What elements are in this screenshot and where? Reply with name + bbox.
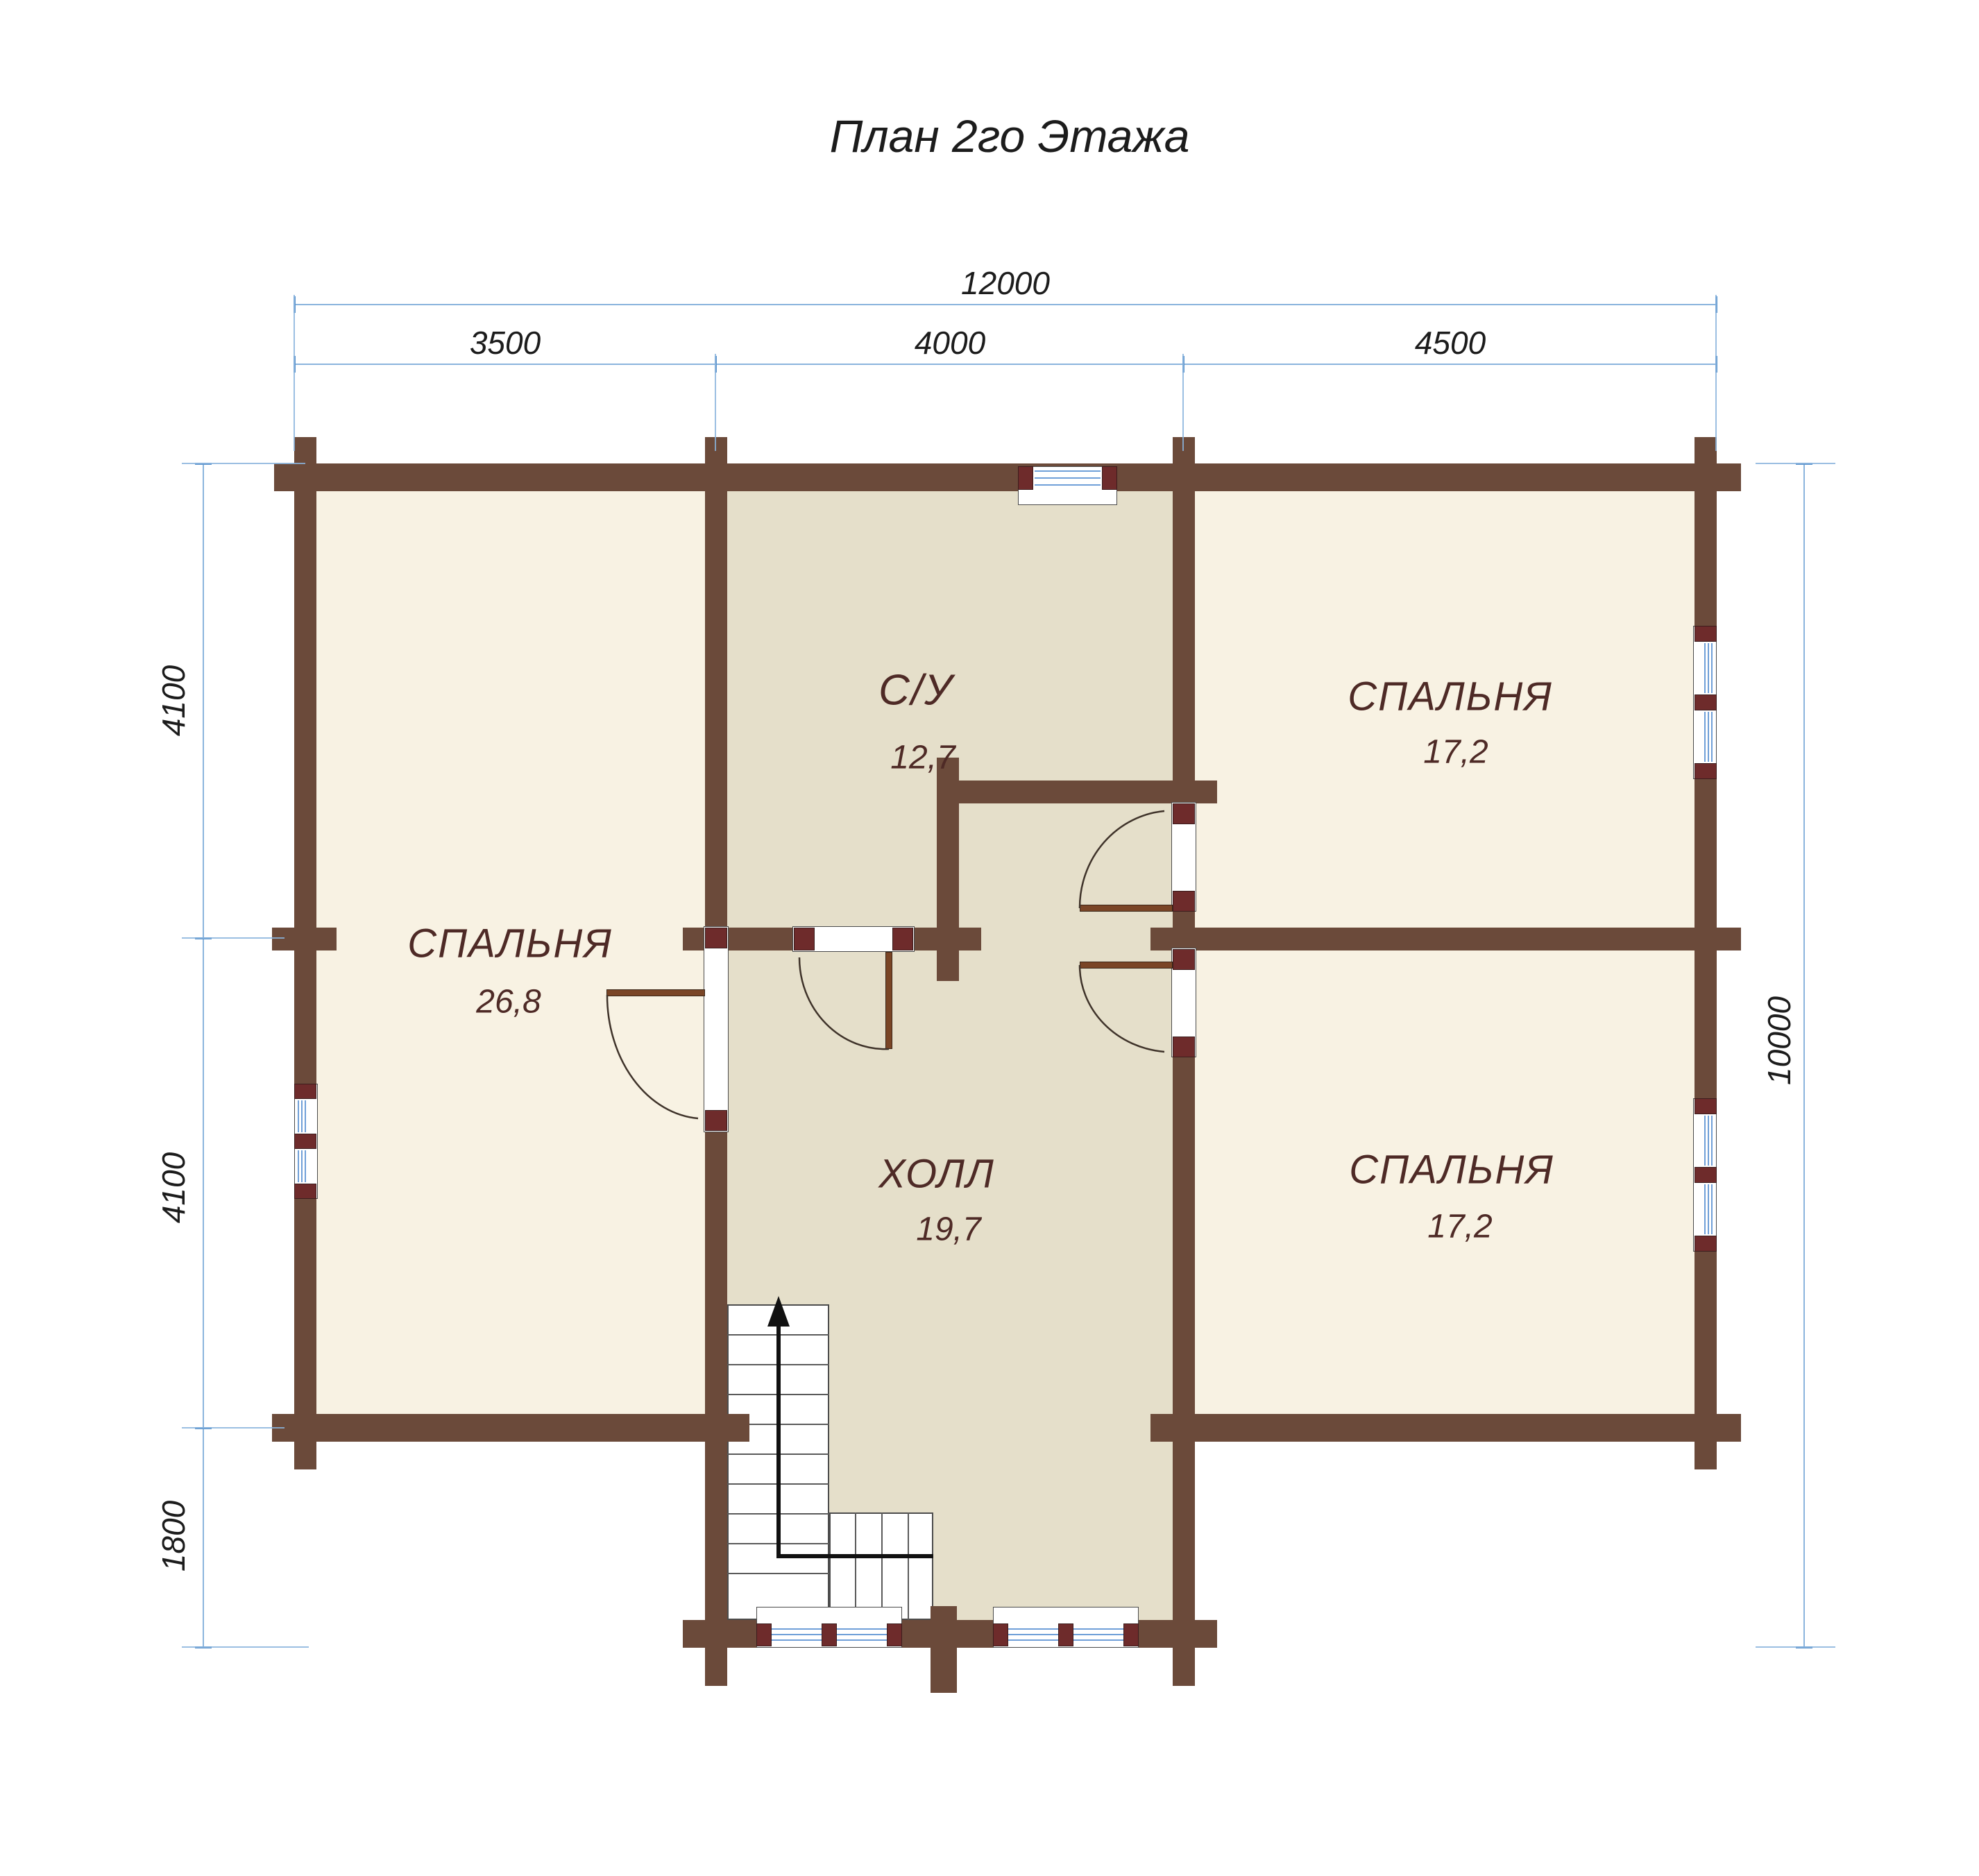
door-arc-bedroom-top-right xyxy=(1080,811,1164,908)
dim-line-left xyxy=(203,463,204,1648)
dim-label-left-1: 4100 xyxy=(155,665,192,736)
room-label-hall: ХОЛЛ xyxy=(878,1151,994,1197)
dim-extension xyxy=(182,463,305,464)
stairs-up-arrow-icon xyxy=(767,1296,790,1327)
dim-label-left-2: 4100 xyxy=(155,1152,192,1223)
door-arc-bathroom xyxy=(799,957,889,1049)
dim-label-left-3: 1800 xyxy=(155,1501,192,1571)
dim-line-total-width xyxy=(294,304,1717,305)
dim-extension xyxy=(1756,1646,1835,1648)
floor-plan-canvas: План 2го Этажа xyxy=(0,0,1979,1876)
room-area-hall: 19,7 xyxy=(916,1211,980,1249)
stairs-path xyxy=(779,1320,933,1556)
room-area-bedroom-bottom-right: 17,2 xyxy=(1427,1208,1492,1246)
room-area-bedroom-left: 26,8 xyxy=(476,983,541,1021)
dim-label-total-width: 12000 xyxy=(961,264,1050,302)
dim-extension xyxy=(1756,463,1835,464)
dim-label-segment-1: 3500 xyxy=(470,324,541,361)
dim-label-segment-3: 4500 xyxy=(1415,324,1486,361)
dim-extension xyxy=(182,937,284,939)
dim-extension xyxy=(1715,295,1717,451)
room-area-bedroom-top-right: 17,2 xyxy=(1423,733,1488,771)
dim-extension xyxy=(1182,354,1184,451)
room-label-bathroom: С/У xyxy=(878,666,953,715)
dim-extension xyxy=(182,1427,284,1429)
door-arc-bedroom-bottom-right xyxy=(1080,965,1164,1052)
dim-line-right xyxy=(1803,463,1805,1648)
door-arc-bedroom-left xyxy=(607,995,698,1118)
room-label-bedroom-top-right: СПАЛЬНЯ xyxy=(1348,674,1553,720)
room-area-bathroom: 12,7 xyxy=(890,739,955,777)
dim-extension xyxy=(294,295,295,451)
dim-label-right-total: 10000 xyxy=(1760,996,1798,1085)
room-label-bedroom-bottom-right: СПАЛЬНЯ xyxy=(1349,1147,1554,1193)
dim-extension xyxy=(182,1646,309,1648)
dim-extension xyxy=(715,354,716,451)
dim-line-top-segments xyxy=(294,364,1717,365)
dim-label-segment-2: 4000 xyxy=(915,324,985,361)
room-label-bedroom-left: СПАЛЬНЯ xyxy=(407,921,613,967)
